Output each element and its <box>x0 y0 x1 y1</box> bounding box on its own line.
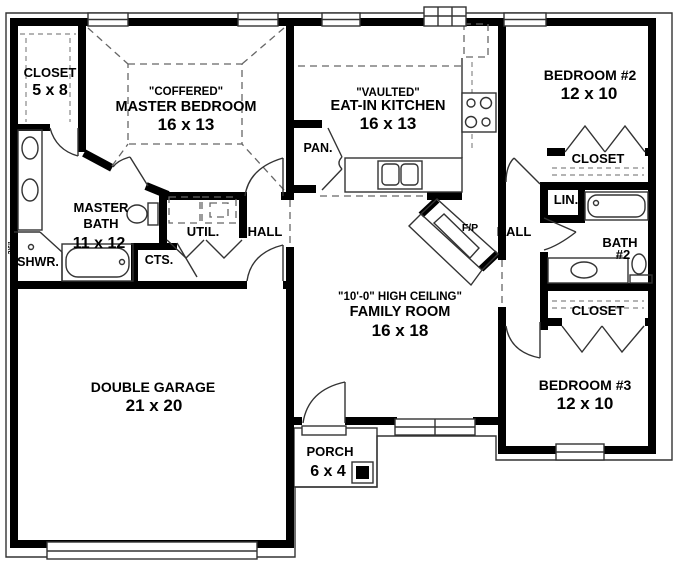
label-hall-west: HALL <box>248 224 283 239</box>
label-closet-b2: CLOSET <box>572 151 625 166</box>
wall-pantry-bottom <box>286 185 316 193</box>
label-fireplace: F/P <box>462 222 478 234</box>
label-kitchen: EAT-IN KITCHEN <box>331 98 446 114</box>
bath2-tub <box>585 192 648 220</box>
wall-bath-util <box>159 192 167 243</box>
wall-pantry-top <box>286 120 322 128</box>
tub-drain <box>120 260 125 265</box>
refrigerator <box>464 24 488 57</box>
label-bedroom3: BEDROOM #3 <box>539 377 632 393</box>
fireplace <box>409 199 498 285</box>
bedroom2-door <box>506 158 540 184</box>
vanity-sink-2 <box>22 179 38 201</box>
window <box>395 419 475 435</box>
label-master-bedroom-dims: 16 x 13 <box>158 115 215 134</box>
wall-cts-north <box>131 243 177 250</box>
window <box>322 13 360 26</box>
wall-linen-east <box>578 190 585 217</box>
window <box>88 13 128 26</box>
wall-kitchen-halfwall <box>427 192 462 200</box>
wall-closet-east <box>78 18 86 152</box>
label-master-closet-dims: 5 x 8 <box>32 82 68 99</box>
label-bedroom2-dims: 12 x 10 <box>561 84 618 103</box>
label-bedroom2: BEDROOM #2 <box>544 67 637 83</box>
toilet-tank <box>148 203 158 225</box>
label-master-bedroom-ceiling: "COFFERED" <box>149 86 223 98</box>
wall-east <box>648 18 656 454</box>
label-bath2-number: #2 <box>616 247 630 262</box>
garage-entry-door <box>247 245 283 281</box>
wall-garage-east <box>286 247 294 548</box>
wall-mb-diagonal-1 <box>84 153 112 168</box>
utility-bifold-doors <box>167 240 242 258</box>
closet-b2-bifold-doors <box>565 126 645 152</box>
label-hall-east: HALL <box>497 224 532 239</box>
firebox <box>434 214 479 258</box>
wall-bedroom3-west <box>498 307 506 454</box>
label-pantry: PAN. <box>304 141 333 155</box>
label-master-bath-dims: 11 x 12 <box>73 235 126 252</box>
label-family-ceiling: "10'-0" HIGH CEILING" <box>338 291 462 303</box>
master-bedroom-door <box>245 158 283 196</box>
wall-linen-west <box>540 190 548 218</box>
dressing-door <box>113 157 148 186</box>
label-master-bath-1: MASTER <box>74 200 130 215</box>
pantry-doors <box>322 128 342 190</box>
label-shower-dims: 3'6" <box>8 242 15 255</box>
label-family-room: FAMILY ROOM <box>350 304 451 320</box>
label-cts: CTS. <box>145 253 173 267</box>
window <box>238 13 278 26</box>
vanity-sink-1 <box>22 137 38 159</box>
floor-plan-page: CLOSET 5 x 8 "COFFERED" MASTER BEDROOM 1… <box>0 0 680 564</box>
label-master-bedroom: MASTER BEDROOM <box>116 99 257 115</box>
toilet-bowl <box>127 205 147 223</box>
closet-b3-bifold-doors <box>562 326 644 352</box>
bay-window <box>424 7 466 26</box>
wall-util-hall <box>239 192 247 238</box>
front-door-threshold <box>302 426 346 435</box>
dryer <box>202 197 236 223</box>
utility-fixtures <box>169 197 236 223</box>
label-shower: SHWR. <box>17 255 59 269</box>
label-porch: PORCH <box>307 444 354 459</box>
label-master-closet: CLOSET <box>24 65 77 80</box>
bath2-sink <box>571 262 597 278</box>
label-garage: DOUBLE GARAGE <box>91 379 215 395</box>
master-closet-door <box>50 128 78 156</box>
cts-door <box>177 243 197 277</box>
label-porch-dims: 6 x 4 <box>310 463 346 480</box>
bedroom3-door <box>506 322 540 358</box>
front-door <box>303 382 345 423</box>
label-linen: LIN. <box>554 192 579 207</box>
label-kitchen-dims: 16 x 13 <box>360 114 417 133</box>
label-family-room-dims: 16 x 18 <box>372 321 429 340</box>
window <box>556 444 604 460</box>
shower-door <box>40 232 62 252</box>
label-bedroom3-dims: 12 x 10 <box>557 394 614 413</box>
floor-plan-drawing: CLOSET 5 x 8 "COFFERED" MASTER BEDROOM 1… <box>0 0 680 564</box>
garage-door <box>47 542 257 559</box>
shower-head <box>29 245 34 250</box>
label-utility: UTIL. <box>187 224 220 239</box>
washer <box>169 197 200 223</box>
label-garage-dims: 21 x 20 <box>126 396 183 415</box>
label-closet-b3: CLOSET <box>572 303 625 318</box>
porch-column <box>352 462 373 483</box>
window <box>504 13 546 26</box>
bath2-toilet-bowl <box>632 254 646 274</box>
label-master-bath-2: BATH <box>83 216 118 231</box>
